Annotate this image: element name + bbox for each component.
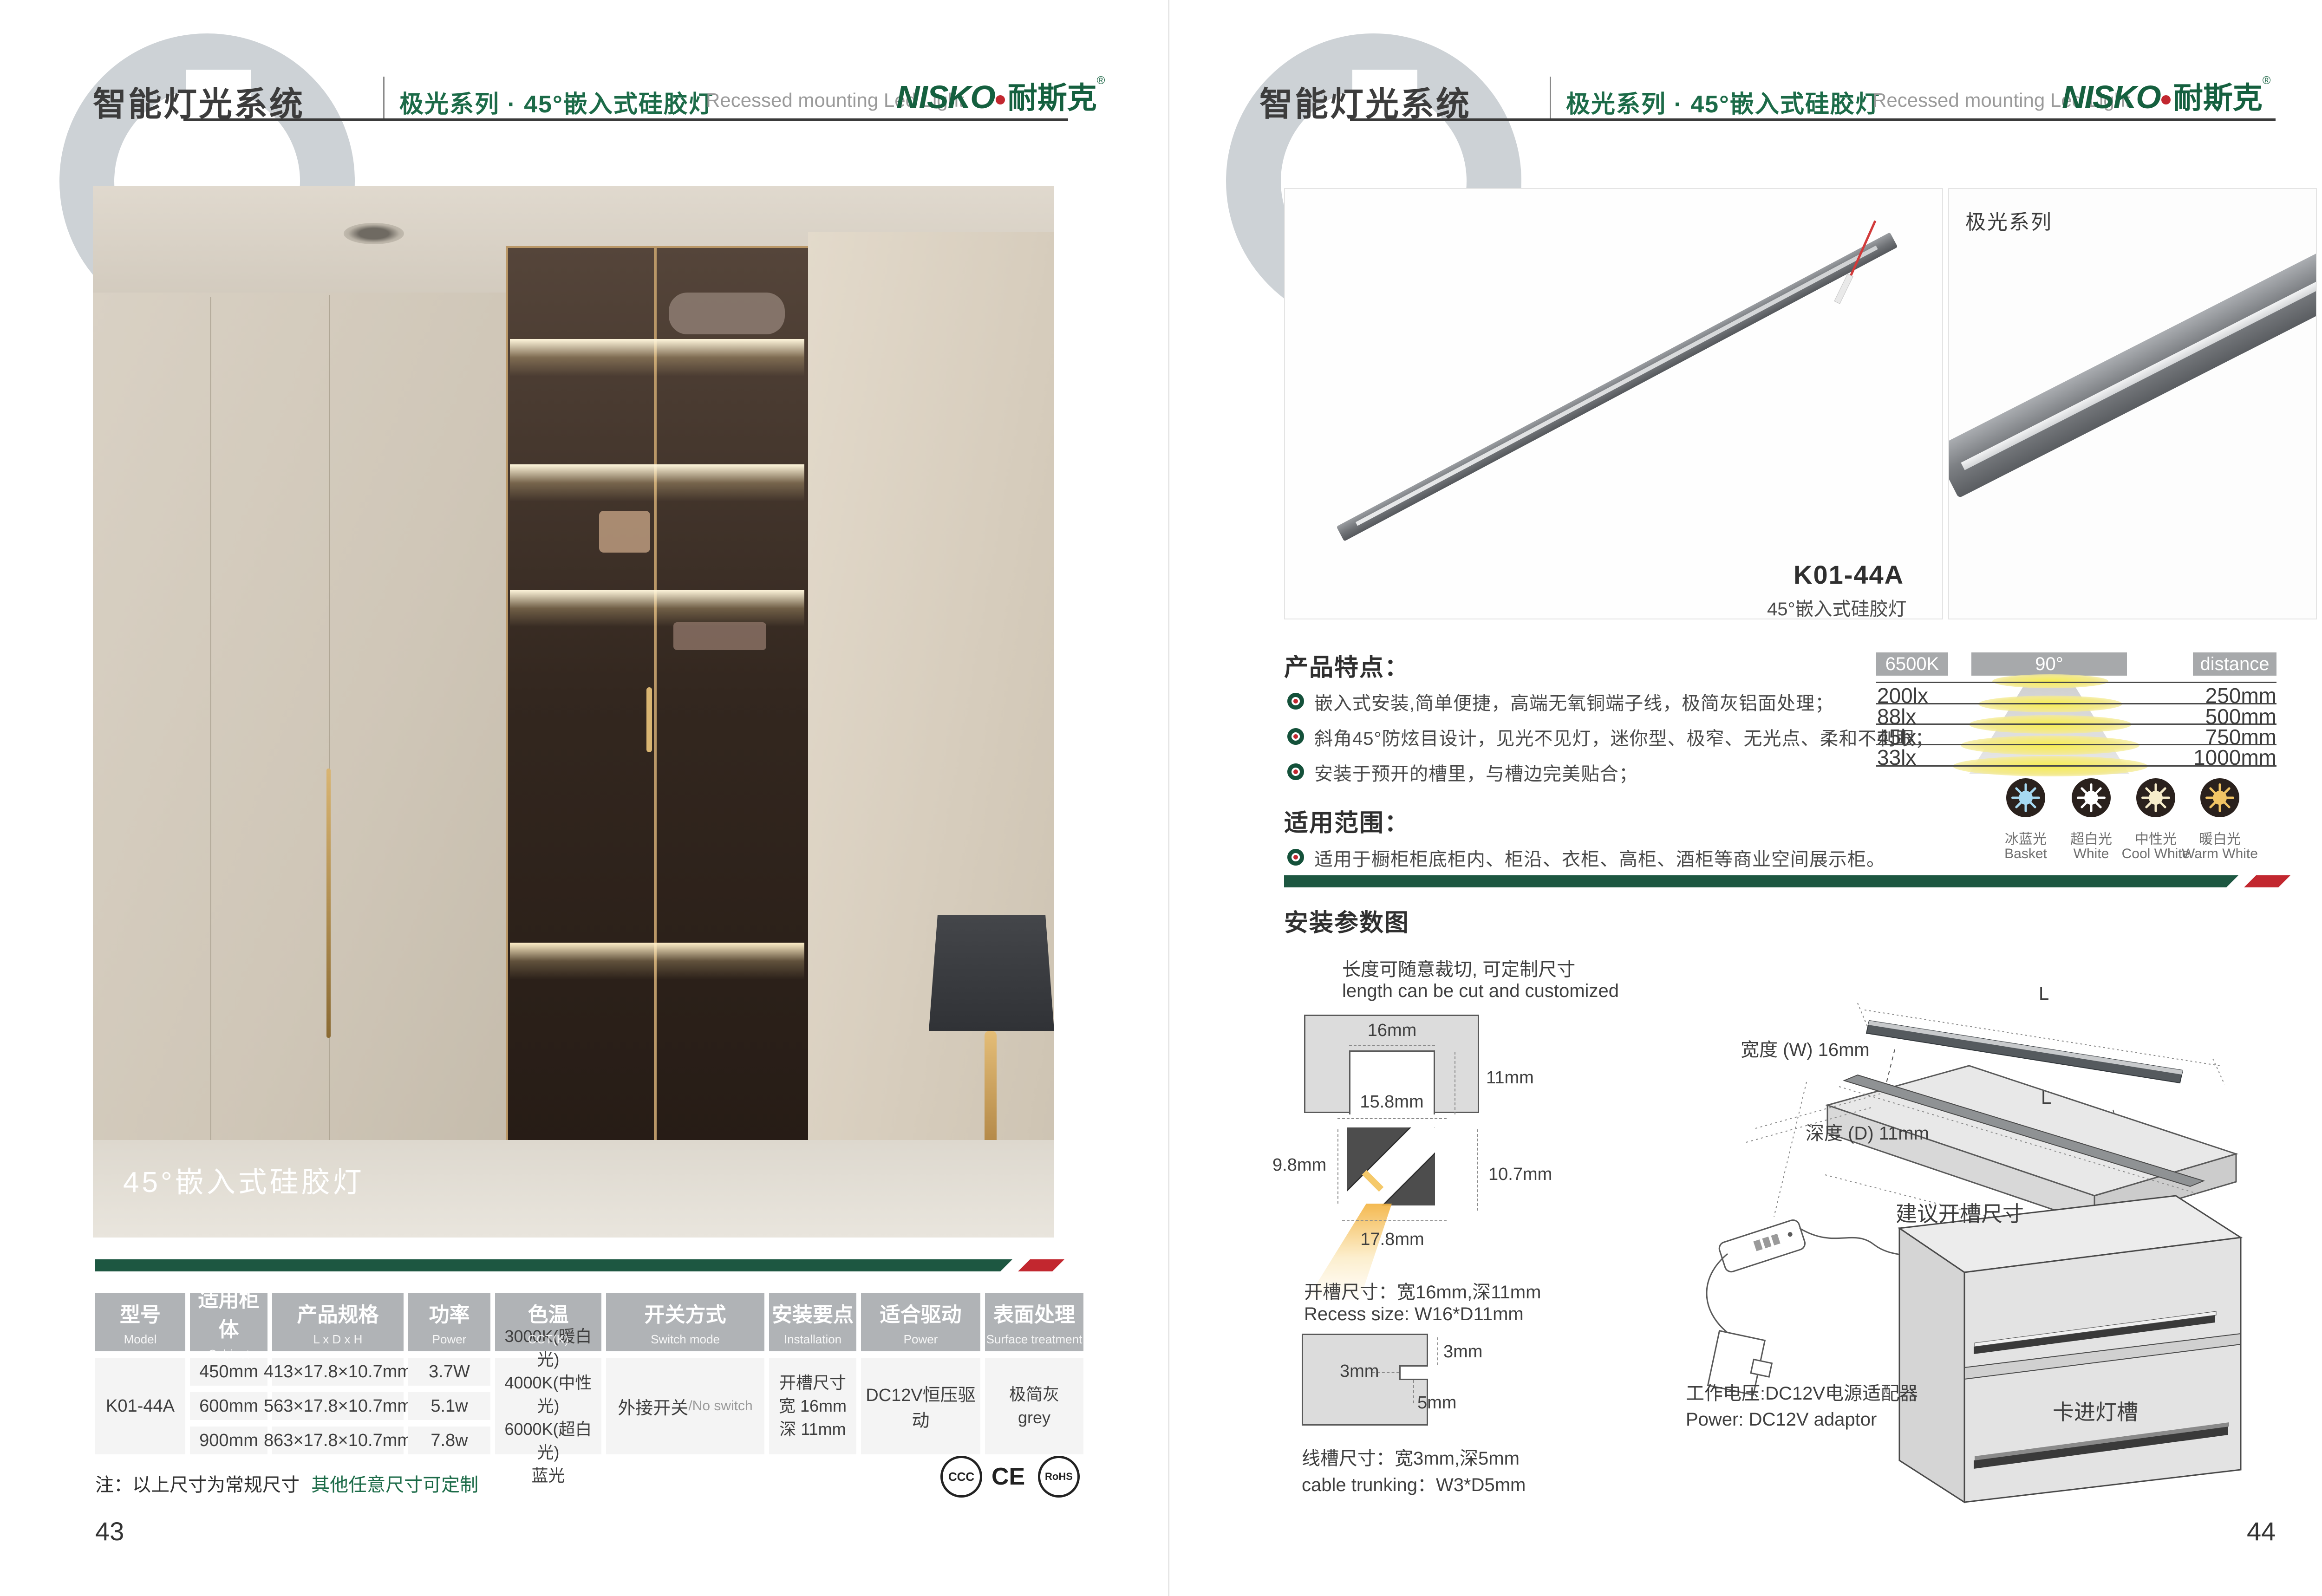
page-number-left: 43 (95, 1516, 124, 1546)
cell-spec-600: 563×17.8×10.7mm (272, 1392, 404, 1420)
cut-note-cn: 长度可随意裁切, 可定制尺寸 (1342, 954, 1575, 981)
photo-door-seam (329, 295, 330, 1238)
suggest-recess-label: 建议开槽尺寸 (1896, 1197, 2024, 1228)
photo-cabinet-handle (646, 687, 652, 752)
photometric-distance-box: distance (2193, 652, 2276, 676)
clip-into-slot-label: 卡进灯槽 (2053, 1395, 2138, 1426)
photo-shelf-light (510, 590, 804, 627)
table-header-spec: 产品规格L x D x H (272, 1293, 404, 1351)
brand-logo: NISKO耐斯克® (896, 74, 1105, 117)
swatch-label-en: Warm White (2164, 846, 2276, 862)
cell-switch: 外接开关/No switch (606, 1358, 764, 1454)
series-tag: 极光系列 (1965, 205, 2053, 235)
dim-guide (1337, 1129, 1338, 1204)
cell-power-450: 3.7W (408, 1358, 490, 1386)
series-title: 极光系列 · 45°嵌入式硅胶灯 (1566, 85, 1880, 119)
length-label-panel: L (2041, 1088, 2051, 1108)
photo-door-seam (210, 297, 211, 1238)
ce-cert-icon: CE (991, 1463, 1025, 1491)
dim-guide (1455, 1052, 1455, 1114)
photo-shelf-light (510, 339, 804, 376)
profile-channel (1347, 1127, 1435, 1205)
photo-caption: 45°嵌入式硅胶灯 (123, 1159, 365, 1200)
table-header-switch: 开关方式Switch mode (606, 1293, 764, 1351)
cell-cabinet-450: 450mm (190, 1358, 267, 1386)
table-note: 注：以上尺寸为常规尺寸 其他任意尺寸可定制 (95, 1470, 478, 1497)
dim-top: 16mm (1356, 1021, 1428, 1041)
features-title: 产品特点： (1284, 648, 1409, 683)
rohs-cert-icon: RoHS (1038, 1456, 1080, 1498)
cut-note-en: length can be cut and customized (1342, 981, 1619, 1002)
feature-bullet-icon (1287, 728, 1304, 745)
dim-guide (1477, 1129, 1478, 1211)
logo-registered-mark: ® (2263, 74, 2271, 87)
cell-power-900: 7.8w (408, 1427, 490, 1454)
divider-bar-green (95, 1259, 1012, 1271)
power-voltage-cn: 工作电压:DC12V电源适配器 (1686, 1378, 1918, 1405)
swatch-label-cn: 暖白光 (2173, 827, 2266, 848)
ccc-cert-icon: CCC (940, 1456, 982, 1498)
feature-bullet-icon (1287, 763, 1304, 780)
cell-installation: 开槽尺寸 宽 16mm 深 11mm (769, 1358, 856, 1454)
spec-table: 型号Model 适用柜体Cabinet 产品规格L x D x H 功率Powe… (95, 1293, 1083, 1454)
product-model-label: K01-44A (1794, 560, 1904, 590)
product-photo-main: K01-44A 45°嵌入式硅胶灯 (1284, 188, 1943, 619)
header-underline (1350, 118, 2276, 121)
distance-value: 1000mm (2174, 745, 2276, 770)
dim-side: 11mm (1486, 1068, 1534, 1088)
table-header-driver: 适合驱动Power (861, 1293, 980, 1351)
trunk-dim-right: 3mm (1443, 1342, 1482, 1362)
scope-bullet-icon (1287, 849, 1304, 866)
led-profile-closeup (1948, 242, 2317, 498)
dim-guide (1349, 1045, 1435, 1046)
brand-logo: NISKO耐斯克® (2062, 74, 2270, 117)
power-voltage-en: Power: DC12V adaptor (1686, 1409, 1877, 1430)
cell-cabinet-600: 600mm (190, 1392, 267, 1420)
header-separator (383, 77, 385, 118)
cell-power-600: 5.1w (408, 1392, 490, 1420)
table-header-model: 型号Model (95, 1293, 185, 1351)
swatch-warm-white-icon (2200, 778, 2239, 817)
trunking-slot (1399, 1365, 1428, 1380)
divider-bar-green (1284, 875, 2238, 887)
recess-size-en: Recess size: W16*D11mm (1304, 1304, 1524, 1325)
length-label-top: L (2039, 984, 2049, 1004)
feature-item: 安装于预开的槽里，与槽边完美贴合； (1314, 759, 1638, 786)
feature-item: 斜角45°防炫目设计，见光不见灯，迷你型、极窄、无光点、柔和不刺眼； (1314, 723, 1934, 750)
divider-bar-red (1018, 1259, 1064, 1271)
header-separator (1550, 77, 1551, 118)
lux-value: 33lx (1877, 745, 1916, 770)
led-profile-diffuser (1961, 273, 2317, 470)
photo-right-wall (808, 232, 1054, 1238)
cell-cabinet-900: 900mm (190, 1427, 267, 1454)
trunking-size-cn: 线槽尺寸：宽3mm,深5mm (1302, 1443, 1520, 1470)
dim-bottom: 17.8mm (1355, 1230, 1429, 1250)
cell-surface: 极简灰 grey (985, 1358, 1083, 1454)
width-label: 宽度 (W) 16mm (1741, 1035, 1870, 1062)
photo-lamp-shade (929, 915, 1054, 1031)
light-glow-ellipse (1992, 674, 2108, 688)
photo-door-handle (326, 769, 331, 1038)
product-name-label: 45°嵌入式硅胶灯 (1767, 594, 1907, 619)
dim-inner: 15.8mm (1352, 1092, 1431, 1112)
dim-guide (1437, 1337, 1438, 1365)
cell-spec-450: 413×17.8×10.7mm (272, 1358, 404, 1386)
led-bar-diffuser (1355, 246, 1878, 526)
page-number-right: 44 (2247, 1516, 2276, 1546)
swatch-cool-white-icon (2136, 778, 2175, 817)
photo-pillow (669, 293, 785, 334)
dim-left: 9.8mm (1272, 1155, 1326, 1175)
feature-bullet-icon (1287, 693, 1304, 710)
header-underline (183, 118, 1068, 121)
cell-driver: DC12V恒压驱动 (861, 1358, 980, 1454)
swatch-ice-blue-icon (2006, 778, 2045, 817)
depth-label: 深度 (D) 11mm (1806, 1118, 1929, 1145)
dim-right: 10.7mm (1488, 1165, 1552, 1185)
photo-shelf-light (510, 943, 804, 980)
led-bar-photo (1337, 232, 1898, 541)
series-title: 极光系列 · 45°嵌入式硅胶灯 (399, 85, 714, 119)
feature-item: 嵌入式安装,简单便捷，高端无氧铜端子线，极简灰铝面处理； (1314, 688, 1834, 715)
note-text: 注：以上尺寸为常规尺寸 (95, 1475, 300, 1495)
table-header-cabinet: 适用柜体Cabinet (190, 1293, 267, 1351)
logo-registered-mark: ® (1097, 74, 1105, 87)
logo-text-cn: 耐斯克 (1008, 81, 1097, 115)
photo-handbag (599, 511, 650, 553)
install-illustration (1686, 975, 2303, 1551)
table-header-surface: 表面处理Surface treatment (985, 1293, 1083, 1351)
dim-guide (1413, 1380, 1414, 1403)
logo-text-en: NISKO (896, 79, 995, 115)
hero-photo: 45°嵌入式硅胶灯 (93, 186, 1054, 1238)
scope-item: 适用于橱柜柜底柜内、柜沿、衣柜、高柜、酒柜等商业空间展示柜。 (1314, 844, 1885, 871)
photo-folded-clothes (673, 622, 766, 650)
cell-spec-900: 863×17.8×10.7mm (272, 1427, 404, 1454)
logo-text-cn: 耐斯克 (2173, 81, 2263, 115)
logo-text-en: NISKO (2062, 79, 2160, 115)
logo-dot-icon (996, 95, 1005, 104)
cell-model: K01-44A (95, 1358, 185, 1454)
catalog-spread: 智能灯光系统 极光系列 · 45°嵌入式硅胶灯 Recessed mountin… (0, 0, 2322, 1596)
dim-guide (1342, 1220, 1447, 1221)
page-gutter-divider (1168, 0, 1169, 1596)
photo-shelf-light (510, 464, 804, 502)
photo-cabinet-door-divider (654, 248, 657, 1236)
trunk-dim-bottom: 5mm (1417, 1393, 1456, 1413)
scope-title: 适用范围： (1284, 803, 1409, 838)
note-highlight: 其他任意尺寸可定制 (311, 1475, 478, 1495)
dim-guide (1337, 1118, 1447, 1119)
trunk-dim-left: 3mm (1340, 1361, 1379, 1381)
photo-spotlight (344, 223, 404, 244)
photo-wardrobe-doors (93, 293, 511, 1238)
light-glow-ellipse (1961, 736, 2139, 755)
photometric-angle-box: 90° (1971, 652, 2127, 676)
led-profile-section (1347, 1127, 1435, 1205)
install-title: 安装参数图 (1284, 903, 1409, 938)
table-header-installation: 安装要点Installation (769, 1293, 856, 1351)
logo-dot-icon (2161, 95, 2171, 104)
swatch-white-icon (2072, 778, 2111, 817)
recess-size-cn: 开槽尺寸：宽16mm,深11mm (1304, 1277, 1541, 1304)
product-photo-detail: 极光系列 (1948, 188, 2317, 619)
table-header-power: 功率Power (408, 1293, 490, 1351)
photo-glass-cabinet (506, 246, 812, 1238)
trunking-size-en: cable trunking：W3*D5mm (1302, 1470, 1526, 1497)
divider-bar-red (2244, 875, 2290, 887)
photometric-cct-box: 6500K (1876, 652, 1948, 676)
cell-cct: 3000K(暖白光) 4000K(中性光) 6000K(超白光) 蓝光 (495, 1358, 601, 1454)
